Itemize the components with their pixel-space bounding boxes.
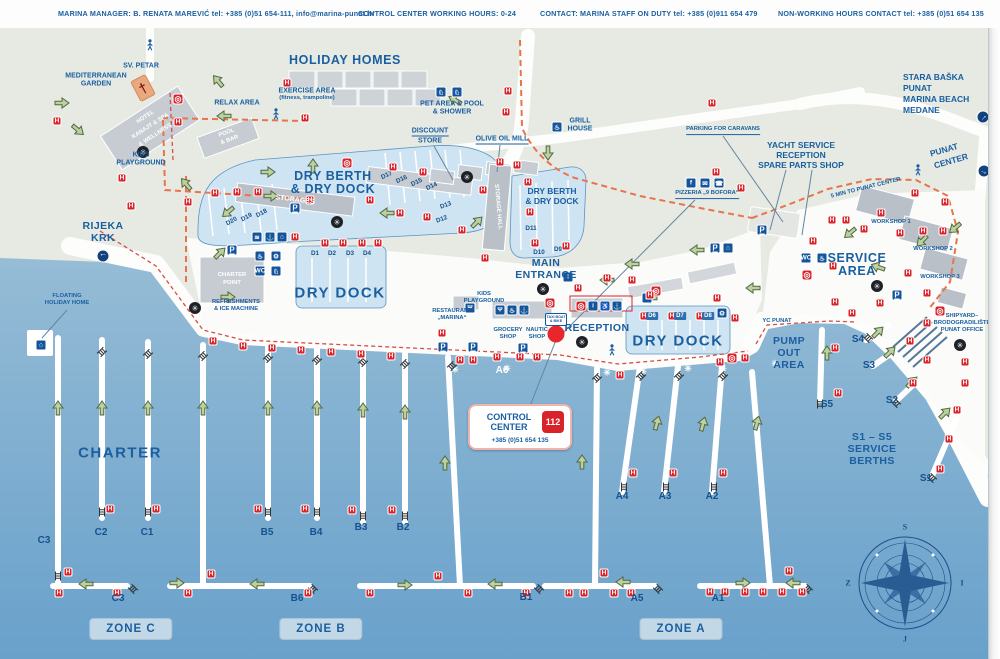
hydrant-marker: H xyxy=(646,291,655,300)
parking-icon: P xyxy=(290,203,301,214)
control-center-title-line2: CENTER xyxy=(476,422,542,432)
propeller-icon: ✳ xyxy=(954,339,966,351)
direction-arrow-icon xyxy=(208,71,227,91)
label-charter: CHARTER xyxy=(218,273,246,279)
label-service: SERVICE xyxy=(828,252,887,265)
label-krk: KRK xyxy=(91,233,115,244)
label-brodogradili-te: BRODOGRADILIŠTE xyxy=(934,321,991,327)
direction-arrow-icon xyxy=(840,223,860,242)
label-b1: B1 xyxy=(520,593,533,603)
lifebuoy-icon: ◎ xyxy=(342,158,353,169)
label-d13: D13 xyxy=(439,201,452,211)
service-icon: ♘ xyxy=(271,266,282,277)
direction-arrow-icon xyxy=(624,258,640,270)
direction-arrow-icon xyxy=(52,400,64,416)
label-yacht-service: YACHT SERVICE xyxy=(767,141,835,150)
ladder-icon xyxy=(127,583,140,596)
hydrant-marker: H xyxy=(896,229,905,238)
label-house: HOUSE xyxy=(568,126,593,133)
label-a5: A5 xyxy=(631,594,644,604)
ladder-icon xyxy=(401,512,410,521)
label-punat-office: PUNAT OFFICE xyxy=(941,328,983,334)
page-edge xyxy=(988,0,1000,659)
topbar-manager-info: MARINA MANAGER: B. RENATA MAREVIĆ tel: +… xyxy=(58,9,375,18)
compass-letter: I xyxy=(960,579,963,588)
label-dry-berth: DRY BERTH xyxy=(527,187,576,196)
hydrant-marker: H xyxy=(321,239,330,248)
label-s2: S2 xyxy=(886,396,898,406)
hydrant-marker: H xyxy=(828,216,837,225)
hydrant-marker: H xyxy=(961,379,970,388)
hydrant-marker: H xyxy=(127,202,136,211)
propeller-icon: ✳ xyxy=(537,283,549,295)
label-d12: D12 xyxy=(435,215,448,225)
emergency-112-badge: 112 xyxy=(542,411,564,433)
service-icon: ⌂ xyxy=(723,243,734,254)
hydrant-marker: H xyxy=(616,371,625,380)
label-a6: A6 xyxy=(496,366,509,376)
label-pizzeria-9-bofora: PIZZERIA „9 BOFORA“ xyxy=(675,191,739,199)
control-center-title-line1: CONTROL xyxy=(476,412,542,422)
hydrant-marker: H xyxy=(469,356,478,365)
hydrant-marker: H xyxy=(389,163,398,172)
hydrant-marker: H xyxy=(953,406,962,415)
hydrant-marker: H xyxy=(233,188,242,197)
label-d1: D1 xyxy=(311,251,319,257)
propeller-icon: ✳ xyxy=(871,280,883,292)
label-garden: GARDEN xyxy=(81,81,111,88)
service-icon: ♘ xyxy=(436,87,447,98)
hydrant-marker: H xyxy=(211,189,220,198)
direction-arrow-icon xyxy=(745,282,761,294)
label-a3: A3 xyxy=(659,492,672,502)
label-d18: D18 xyxy=(255,209,268,220)
direction-arrow-icon xyxy=(260,166,276,178)
hydrant-marker: H xyxy=(600,569,609,578)
hydrant-marker: H xyxy=(438,329,447,338)
ladder-icon xyxy=(142,348,155,361)
ladder-icon xyxy=(311,354,324,367)
service-icon: ♿ xyxy=(600,301,611,312)
direction-arrow-icon xyxy=(379,207,395,219)
topbar-staff-contact: CONTACT: MARINA STAFF ON DUTY tel: +385 … xyxy=(540,9,758,18)
service-icon: ⚓ xyxy=(519,305,530,316)
label-shipyard: SHIPYARD– xyxy=(946,314,979,320)
label-store: STORE xyxy=(418,138,442,145)
label-out: OUT xyxy=(777,348,800,359)
lifebuoy-icon: ◎ xyxy=(802,270,813,281)
label-main: MAIN xyxy=(532,258,560,269)
label-c2: C2 xyxy=(95,528,108,538)
service-icon: ⚙ xyxy=(271,251,282,262)
hydrant-marker: H xyxy=(423,213,432,222)
direction-arrow-icon xyxy=(439,455,451,471)
service-icon: i xyxy=(588,301,599,312)
hydrant-marker: H xyxy=(387,352,396,361)
label-a1: A1 xyxy=(712,594,725,604)
pedestrian-icon xyxy=(145,39,155,51)
label-s5: S5 xyxy=(821,400,833,410)
control-center-location-dot xyxy=(548,326,565,343)
hydrant-marker: H xyxy=(339,239,348,248)
hydrant-marker: H xyxy=(906,337,915,346)
label-charter: CHARTER xyxy=(78,446,162,461)
ladder-icon xyxy=(197,350,210,363)
label-d8: D8 xyxy=(702,312,714,320)
hydrant-marker: H xyxy=(961,358,970,367)
hydrant-marker: H xyxy=(628,276,637,285)
direction-arrow-icon xyxy=(54,97,70,109)
direction-arrow-icon xyxy=(576,454,588,470)
label-marina-beach: MARINA BEACH xyxy=(903,95,969,104)
hydrant-marker: H xyxy=(53,117,62,126)
hydrant-marker: H xyxy=(283,79,292,88)
label-dry-dock: & DRY DOCK xyxy=(525,197,578,206)
hydrant-marker: H xyxy=(481,254,490,263)
hydrant-marker: H xyxy=(848,309,857,318)
hydrant-marker: H xyxy=(358,239,367,248)
service-icon: ⚓ xyxy=(265,232,276,243)
label-playground: PLAYGROUND xyxy=(464,299,505,305)
hydrant-marker: H xyxy=(533,353,542,362)
hydrant-marker: H xyxy=(741,354,750,363)
label-playground: PLAYGROUND xyxy=(116,160,165,167)
mooring-cleat-icon: ✳ xyxy=(603,368,611,379)
label-d7: D7 xyxy=(674,312,686,320)
label-dry-dock: DRY DOCK xyxy=(632,334,723,349)
hydrant-marker: H xyxy=(458,226,467,235)
hydrant-marker: H xyxy=(531,239,540,248)
hydrant-marker: H xyxy=(923,289,932,298)
label-b5: B5 xyxy=(261,528,274,538)
hydrant-marker: H xyxy=(731,314,740,323)
hydrant-marker: H xyxy=(831,344,840,353)
ladder-icon xyxy=(54,572,63,581)
hydrant-marker: H xyxy=(209,337,218,346)
service-icon: WC xyxy=(255,266,266,277)
parking-icon: P xyxy=(227,245,238,256)
parking-icon: P xyxy=(468,342,479,353)
label-service: SERVICE xyxy=(848,444,897,455)
direction-arrow-icon xyxy=(397,579,413,591)
ladder-icon xyxy=(359,512,368,521)
hydrant-marker: H xyxy=(396,209,405,218)
ladder-icon xyxy=(262,352,275,365)
direction-arrow-icon xyxy=(689,244,705,256)
label-dry-dock: DRY DOCK xyxy=(294,286,385,301)
service-icon: ✉ xyxy=(700,178,711,189)
direction-arrow-icon xyxy=(78,578,94,590)
hydrant-marker: H xyxy=(669,469,678,478)
hydrant-marker: H xyxy=(719,469,728,478)
direction-arrow-icon xyxy=(542,145,554,161)
direction-arrow-icon xyxy=(68,120,88,139)
hydrant-marker: H xyxy=(297,346,306,355)
hydrant-marker: H xyxy=(301,505,310,514)
label-rijeka: RIJEKA xyxy=(83,221,124,232)
label-holiday-home: HOLIDAY HOME xyxy=(45,301,89,307)
direction-arrow-icon xyxy=(96,400,108,416)
direction-arrow-icon xyxy=(749,414,765,433)
parking-icon: P xyxy=(757,225,768,236)
label-punat: PUNAT xyxy=(903,84,932,93)
service-icon: Ψ xyxy=(495,305,506,316)
label-spare-parts-shop: SPARE PARTS SHOP xyxy=(758,161,844,170)
label-entrance: ENTRANCE xyxy=(515,270,577,281)
compass-letter: Z xyxy=(845,579,850,588)
hydrant-marker: H xyxy=(502,108,511,117)
control-center-phone: +385 (0)51 654 135 xyxy=(476,437,564,444)
hydrant-marker: H xyxy=(831,298,840,307)
service-icon: ♘ xyxy=(452,87,463,98)
label-d6: D6 xyxy=(646,312,658,320)
label-fitness-trampoline: (fitness, trampoline) xyxy=(279,96,334,102)
hydrant-marker: H xyxy=(580,589,589,598)
hydrant-marker: H xyxy=(923,319,932,328)
label-reception: RECEPTION xyxy=(565,323,630,334)
info-topbar: MARINA MANAGER: B. RENATA MAREVIĆ tel: +… xyxy=(0,0,1000,28)
label-point: POINT xyxy=(223,281,241,287)
hydrant-marker: H xyxy=(291,233,300,242)
hydrant-marker: H xyxy=(456,356,465,365)
label-yc-punat: YC PUNAT xyxy=(762,319,791,325)
hydrant-marker: H xyxy=(876,299,885,308)
direction-arrow-icon xyxy=(649,414,665,433)
hydrant-marker: H xyxy=(496,158,505,167)
taxi-boat-bike-sign: TAXI BOAT & BIKE xyxy=(545,313,567,326)
label-b4: B4 xyxy=(310,528,323,538)
parking-icon: P xyxy=(710,243,721,254)
propeller-icon: ✳ xyxy=(189,302,201,314)
hydrant-marker: H xyxy=(834,389,843,398)
pedestrian-icon xyxy=(607,344,617,356)
parking-icon: P xyxy=(438,342,449,353)
direction-arrow-icon xyxy=(197,400,209,416)
direction-arrow-icon xyxy=(399,404,411,420)
propeller-icon: ✳ xyxy=(461,171,473,183)
ladder-icon xyxy=(313,508,322,517)
hydrant-marker: H xyxy=(301,114,310,123)
hydrant-marker: H xyxy=(513,161,522,170)
compass-letter: J xyxy=(903,635,907,644)
hydrant-marker: H xyxy=(877,209,886,218)
service-icon: ☎ xyxy=(714,178,725,189)
label-s1: S1 xyxy=(920,474,932,484)
label-pet-area-pool: PET AREA & POOL xyxy=(420,101,484,108)
ladder-icon xyxy=(652,583,665,596)
hydrant-marker: H xyxy=(304,589,313,598)
propeller-icon: ✳ xyxy=(576,336,588,348)
label-s4: S4 xyxy=(852,335,864,345)
direction-arrow-icon xyxy=(357,402,369,418)
lifebuoy-icon: ◎ xyxy=(545,298,556,309)
hydrant-marker: H xyxy=(254,188,263,197)
label-medane: MEDANE xyxy=(903,106,940,115)
hydrant-marker: H xyxy=(939,227,948,236)
lifebuoy-icon: ◎ xyxy=(727,353,738,364)
label-workshop-3: WORKSHOP 3 xyxy=(920,275,960,281)
label-area: AREA xyxy=(773,360,804,371)
hydrant-marker: H xyxy=(919,227,928,236)
label-c1: C1 xyxy=(141,528,154,538)
ladder-icon xyxy=(96,346,109,359)
hydrant-marker: H xyxy=(184,198,193,207)
hydrant-marker: H xyxy=(388,506,397,515)
label-marina: „MARINA“ xyxy=(438,316,467,322)
label-dry-dock: & DRY DOCK xyxy=(291,183,375,196)
label-refreshments: REFRESHMENTS xyxy=(212,300,260,306)
mooring-cleat-icon: ✳ xyxy=(684,364,692,375)
hydrant-marker: H xyxy=(419,168,428,177)
pedestrian-icon xyxy=(913,164,923,176)
ladder-icon xyxy=(399,358,412,371)
label-mediterranean: MEDITERRANEAN xyxy=(65,73,126,80)
ladder-icon xyxy=(591,372,604,385)
hydrant-marker: H xyxy=(55,589,64,598)
hydrant-marker: H xyxy=(713,294,722,303)
label-ice-machine: & ICE MACHINE xyxy=(214,307,258,313)
label-d19: D19 xyxy=(240,213,253,224)
label-d4: D4 xyxy=(363,251,371,257)
direction-arrow-icon xyxy=(169,577,185,589)
zone-badge-zone-b: ZONE B xyxy=(279,618,362,640)
direction-arrow-icon xyxy=(216,110,232,122)
service-icon: ♨ xyxy=(255,251,266,262)
label-b6: B6 xyxy=(291,594,304,604)
label-d11: D11 xyxy=(525,226,536,232)
service-icon: ⚓ xyxy=(612,301,623,312)
service-icon: ⌂ xyxy=(36,340,47,351)
hydrant-marker: H xyxy=(712,168,721,177)
hydrant-marker: H xyxy=(64,568,73,577)
hydrant-marker: H xyxy=(207,570,216,579)
label-c3: C3 xyxy=(38,536,51,546)
road-direction-icon: → xyxy=(97,250,110,263)
ladder-icon xyxy=(264,508,273,517)
label-shower: & SHOWER xyxy=(433,109,472,116)
marina-map-screenshot: MARINA MANAGER: B. RENATA MAREVIĆ tel: +… xyxy=(0,0,1000,659)
hydrant-marker: H xyxy=(574,284,583,293)
service-icon: ⚙ xyxy=(717,308,728,319)
hydrant-marker: H xyxy=(904,269,913,278)
topbar-nonworking-contact: NON-WORKING HOURS CONTACT tel: +385 (0)5… xyxy=(778,9,984,18)
church-cross-icon: † xyxy=(136,79,150,97)
label-d3: D3 xyxy=(346,251,354,257)
hydrant-marker: H xyxy=(366,196,375,205)
label-workshop-2: WORKSHOP 2 xyxy=(913,247,953,253)
lifebuoy-icon: ◎ xyxy=(935,306,946,317)
label-d14: D14 xyxy=(425,182,438,193)
topbar-control-hours: CONTROL CENTER WORKING HOURS: 0-24 xyxy=(358,9,516,18)
hydrant-marker: H xyxy=(603,274,612,283)
direction-arrow-icon xyxy=(249,578,265,590)
hydrant-marker: H xyxy=(629,469,638,478)
label-s1-s5: S1 – S5 xyxy=(852,432,892,443)
label-b2: B2 xyxy=(397,523,410,533)
hydrant-marker: H xyxy=(759,588,768,597)
hydrant-marker: H xyxy=(716,358,725,367)
hydrant-marker: H xyxy=(911,189,920,198)
hydrant-marker: H xyxy=(778,588,787,597)
direction-arrow-icon xyxy=(311,400,323,416)
hydrant-marker: H xyxy=(464,589,473,598)
hydrant-marker: H xyxy=(504,87,513,96)
direction-arrow-icon xyxy=(695,415,711,434)
propeller-icon: ✳ xyxy=(331,216,343,228)
direction-arrow-icon xyxy=(880,342,900,362)
label-dry-berth: DRY BERTH xyxy=(294,170,372,183)
service-icon: ♨ xyxy=(817,253,828,264)
hydrant-marker: H xyxy=(327,348,336,357)
direction-arrow-icon xyxy=(142,400,154,416)
hydrant-marker: H xyxy=(254,505,263,514)
label-grocery: GROCERY xyxy=(493,328,522,334)
lifebuoy-icon: ◎ xyxy=(173,94,184,105)
label-kids: KIDS xyxy=(133,152,150,159)
hydrant-marker: H xyxy=(434,572,443,581)
label-reception: RECEPTION xyxy=(776,151,826,160)
hydrant-marker: H xyxy=(184,589,193,598)
hydrant-marker: H xyxy=(708,99,717,108)
hydrant-marker: H xyxy=(941,198,950,207)
label-berths: BERTHS xyxy=(849,456,895,467)
label-s3: S3 xyxy=(863,361,875,371)
direction-arrow-icon xyxy=(262,400,274,416)
label-d10: D10 xyxy=(533,250,545,256)
hydrant-marker: H xyxy=(526,208,535,217)
hydrant-marker: H xyxy=(909,379,918,388)
service-icon: ≋ xyxy=(252,232,263,243)
label-d2: D2 xyxy=(328,251,336,257)
label-nautic: NAUTIC xyxy=(526,328,548,334)
direction-arrow-icon xyxy=(176,174,195,194)
label-floating: FLOATING xyxy=(52,294,81,300)
label-olive-oil-mill: OLIVE OIL MILL xyxy=(476,136,529,145)
label-holiday-homes: HOLIDAY HOMES xyxy=(289,54,401,67)
hydrant-marker: H xyxy=(741,588,750,597)
hydrant-marker: H xyxy=(118,174,127,183)
hydrant-marker: H xyxy=(945,435,954,444)
hydrant-marker: H xyxy=(493,353,502,362)
label-kids: KIDS xyxy=(477,292,491,298)
label-shop: SHOP xyxy=(500,335,516,341)
label-shop: SHOP xyxy=(529,335,545,341)
label-parking-for-caravans: PARKING FOR CARAVANS xyxy=(686,127,760,135)
label-a4: A4 xyxy=(616,492,629,502)
ladder-icon xyxy=(533,583,546,596)
label-relax-area: RELAX AREA xyxy=(214,100,259,107)
pedestrian-icon xyxy=(271,108,281,120)
direction-arrow-icon xyxy=(945,218,965,237)
hydrant-marker: H xyxy=(174,118,183,127)
control-center-callout: CONTROL CENTER 112 +385 (0)51 654 135 xyxy=(468,404,572,450)
label-a2: A2 xyxy=(706,492,719,502)
direction-arrow-icon xyxy=(615,576,631,588)
service-icon: ♨ xyxy=(552,122,563,133)
hydrant-marker: H xyxy=(357,350,366,359)
map-overlay: HOLIDAY HOMESMEDITERRANEANGARDENSV. PETA… xyxy=(0,0,1000,659)
hydrant-marker: H xyxy=(785,567,794,576)
hydrant-marker: H xyxy=(860,225,869,234)
parking-icon: P xyxy=(892,290,903,301)
hydrant-marker: H xyxy=(106,505,115,514)
label-5-min-to-punat-center: 5 MIN TO PUNAT CENTER xyxy=(831,178,902,201)
label-d15: D15 xyxy=(410,178,423,189)
hydrant-marker: H xyxy=(562,242,571,251)
label-b3: B3 xyxy=(355,523,368,533)
label-d16: D16 xyxy=(395,175,408,186)
hydrant-marker: H xyxy=(268,344,277,353)
